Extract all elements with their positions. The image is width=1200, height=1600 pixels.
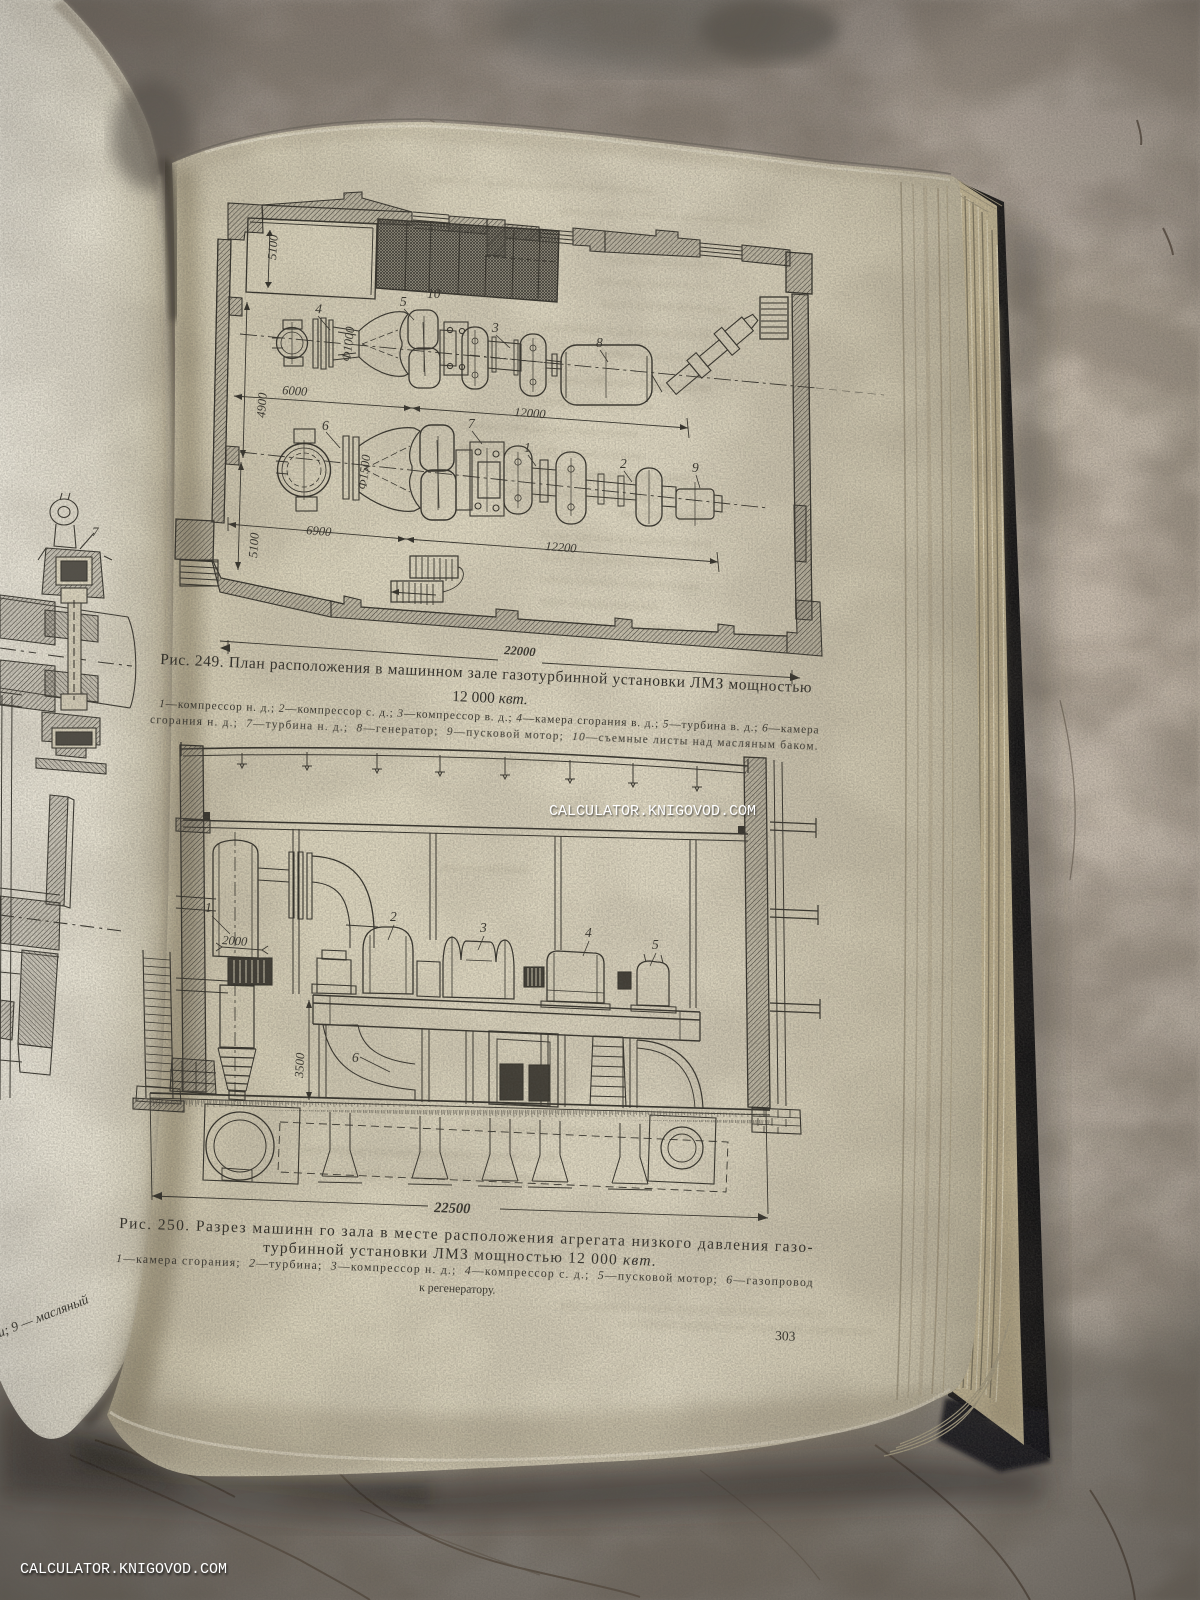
svg-text:CALCULATOR.KNIGOVOD.COM: CALCULATOR.KNIGOVOD.COM	[20, 1561, 227, 1578]
svg-text:CALCULATOR.KNIGOVOD.COM: CALCULATOR.KNIGOVOD.COM	[549, 803, 756, 820]
